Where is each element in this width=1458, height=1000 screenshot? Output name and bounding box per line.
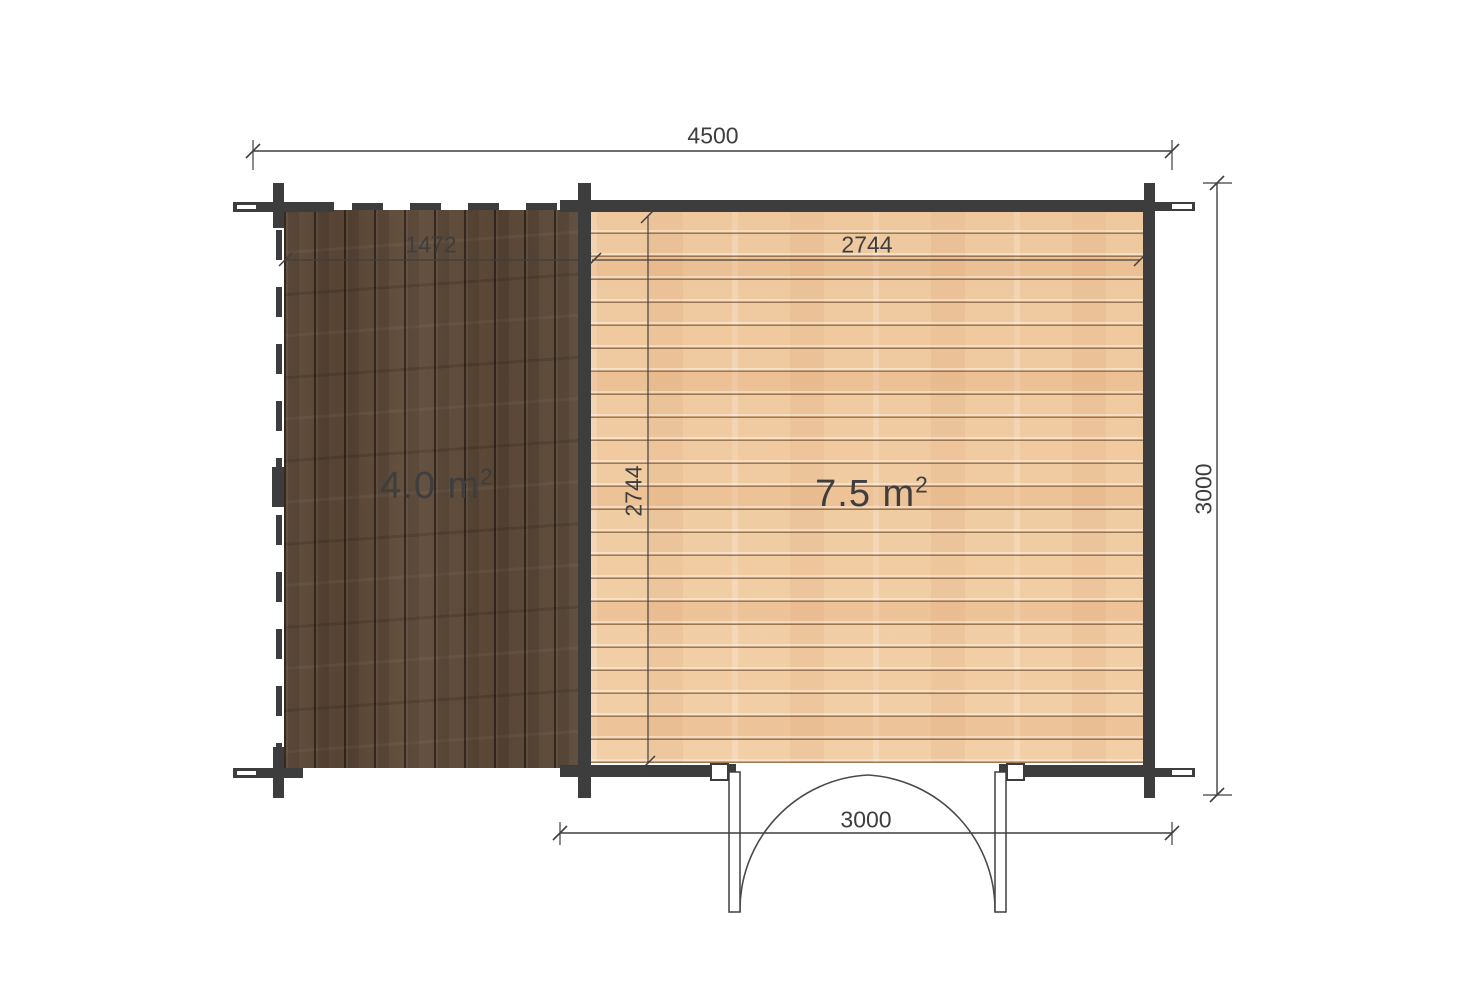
- dimension-label-overall-depth: 3000: [1193, 463, 1216, 514]
- area-label-room-value: 7.5 m: [815, 473, 915, 515]
- area-label-room-sup: 2: [915, 471, 929, 497]
- door-hinge-right: [999, 764, 1007, 772]
- door-hinge-left: [728, 764, 736, 772]
- area-label-terrace-sup: 2: [480, 463, 494, 489]
- door-leaf-left: [729, 772, 740, 912]
- area-label-terrace: 4.0 m2: [380, 467, 494, 505]
- door-leaf-right: [995, 772, 1006, 912]
- door-swing-arc-left: [740, 775, 868, 912]
- area-label-room: 7.5 m2: [815, 475, 929, 513]
- dimension-label-room-width: 2744: [841, 234, 892, 257]
- area-label-terrace-value: 4.0 m: [380, 465, 480, 507]
- dimension-label-front-width: 3000: [840, 809, 891, 832]
- dimension-label-overall-width: 4500: [687, 125, 738, 148]
- door-jamb-plate-left: [711, 764, 728, 780]
- door-jamb-plate-right: [1007, 764, 1024, 780]
- dimension-label-terrace-width: 1472: [405, 234, 456, 257]
- drawing-linework: [0, 0, 1458, 1000]
- door-swing-arc-right: [868, 775, 995, 912]
- dimension-label-room-depth: 2744: [623, 465, 646, 516]
- floor-plan: 4500 1472 2744 2744 3000 3000 4.0 m2 7.5…: [0, 0, 1458, 1000]
